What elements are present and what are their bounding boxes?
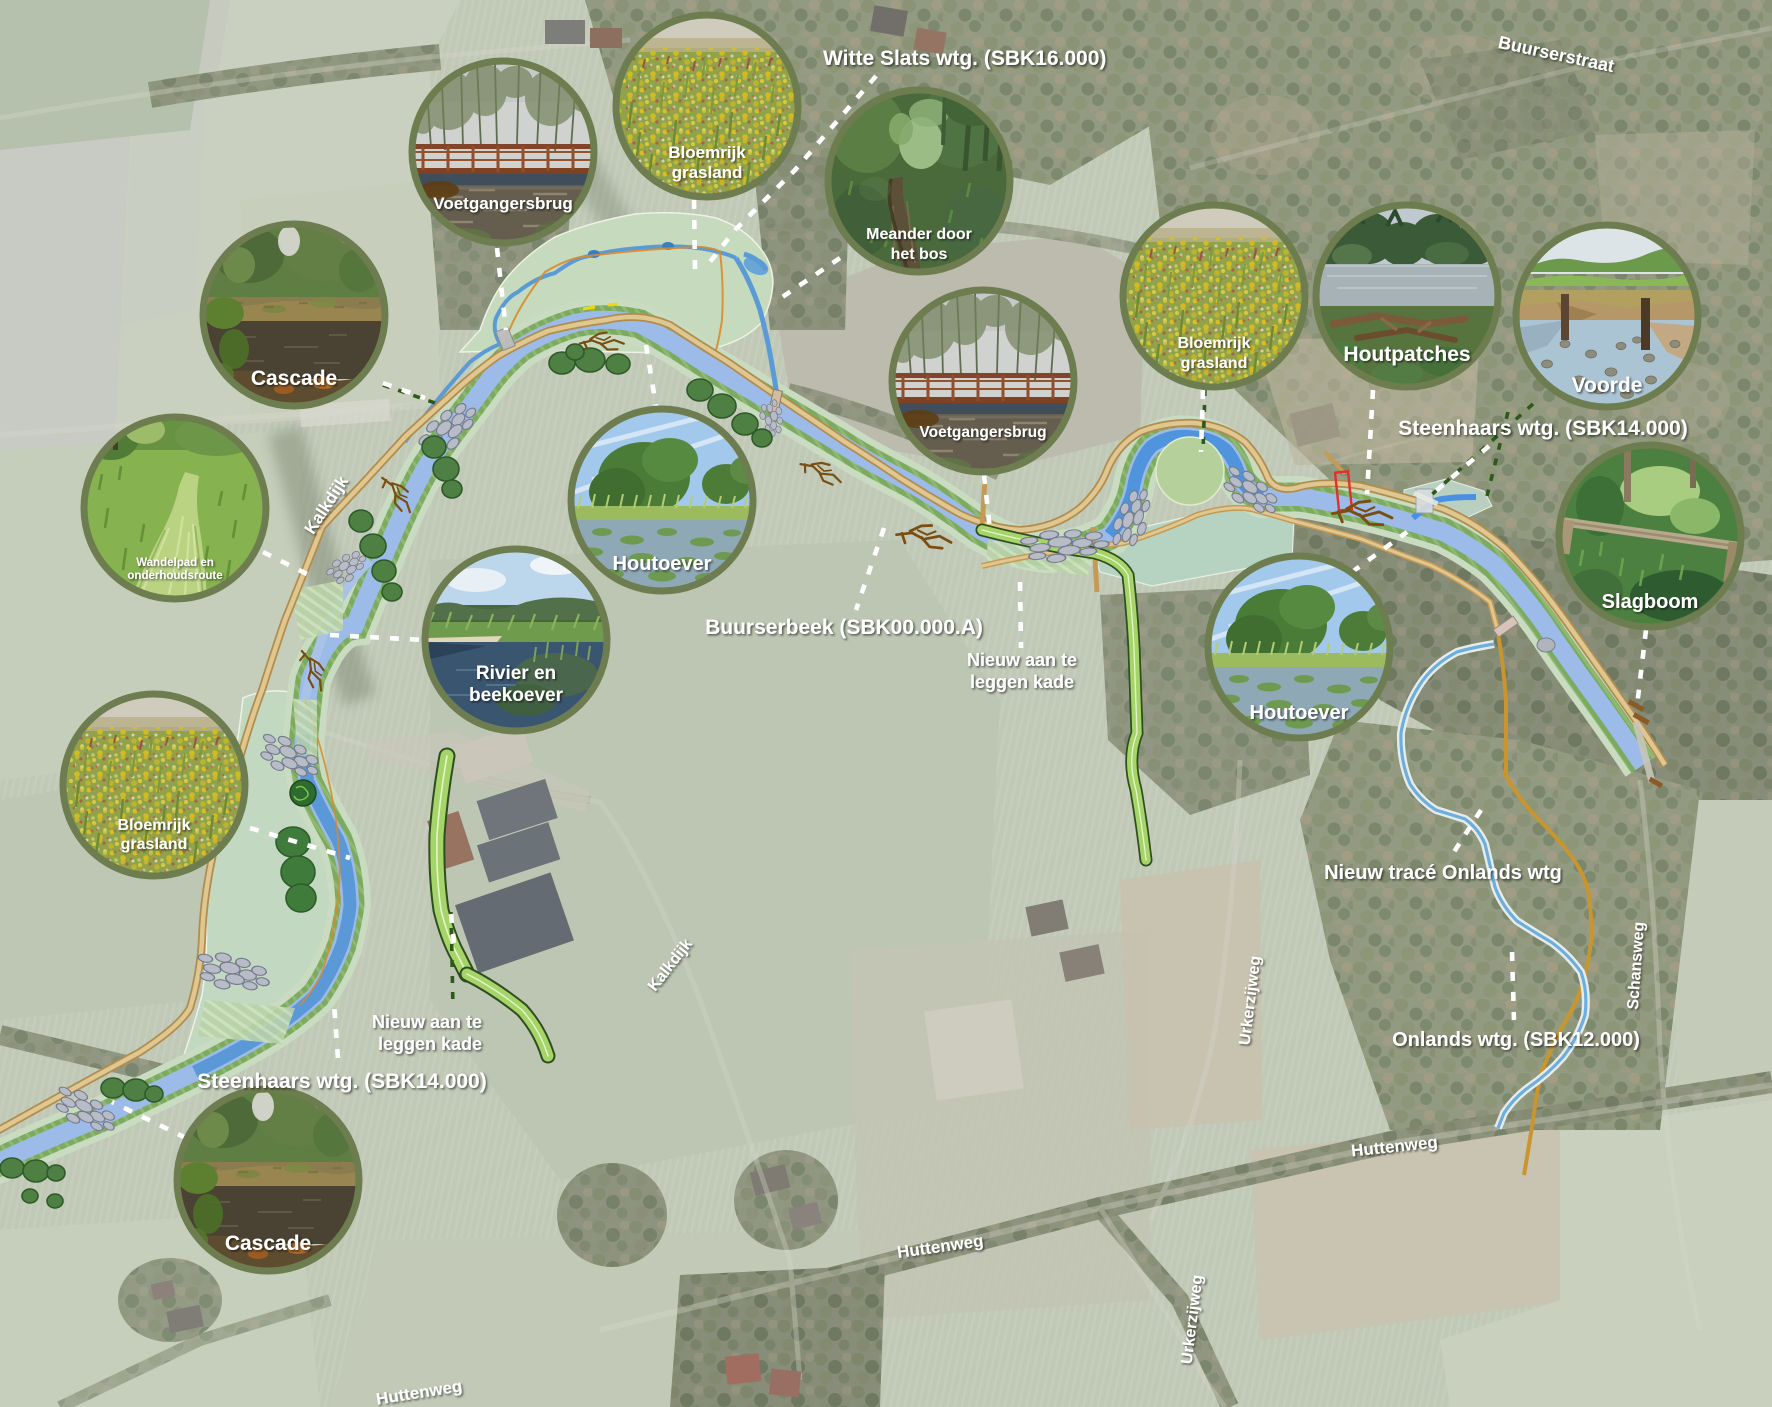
svg-text:Steenhaars wtg. (SBK14.000): Steenhaars wtg. (SBK14.000) bbox=[197, 1070, 486, 1093]
svg-text:Onlands wtg. (SBK12.000): Onlands wtg. (SBK12.000) bbox=[1392, 1029, 1640, 1051]
svg-text:Meander door: Meander door bbox=[866, 226, 972, 243]
svg-text:Witte Slats wtg. (SBK16.000): Witte Slats wtg. (SBK16.000) bbox=[823, 47, 1106, 70]
svg-text:Houtpatches: Houtpatches bbox=[1343, 343, 1470, 366]
svg-text:Cascade: Cascade bbox=[251, 367, 337, 390]
svg-text:Voetgangersbrug: Voetgangersbrug bbox=[433, 194, 572, 213]
svg-text:grasland: grasland bbox=[1181, 355, 1248, 372]
svg-text:Rivier en: Rivier en bbox=[476, 663, 556, 684]
svg-text:Nieuw aan te: Nieuw aan te bbox=[372, 1012, 482, 1032]
svg-text:Buurserbeek (SBK00.000.A): Buurserbeek (SBK00.000.A) bbox=[705, 616, 983, 639]
svg-text:Voorde: Voorde bbox=[1572, 374, 1643, 397]
svg-text:Steenhaars wtg. (SBK14.000): Steenhaars wtg. (SBK14.000) bbox=[1398, 417, 1687, 440]
svg-text:grasland: grasland bbox=[121, 836, 188, 853]
svg-text:Bloemrijk: Bloemrijk bbox=[668, 143, 746, 162]
svg-text:Bloemrijk: Bloemrijk bbox=[118, 817, 191, 834]
svg-text:Wandelpad en: Wandelpad en bbox=[136, 557, 214, 569]
svg-text:leggen kade: leggen kade bbox=[378, 1034, 482, 1054]
svg-text:Houtoever: Houtoever bbox=[1250, 702, 1349, 724]
svg-text:Nieuw aan te: Nieuw aan te bbox=[967, 650, 1077, 670]
svg-text:Voetgangersbrug: Voetgangersbrug bbox=[919, 424, 1046, 441]
svg-text:Nieuw tracé Onlands wtg: Nieuw tracé Onlands wtg bbox=[1324, 862, 1562, 884]
svg-text:het bos: het bos bbox=[891, 246, 948, 263]
svg-text:beekoever: beekoever bbox=[469, 685, 564, 706]
svg-text:Bloemrijk: Bloemrijk bbox=[1178, 335, 1251, 352]
svg-text:onderhoudsroute: onderhoudsroute bbox=[127, 570, 222, 582]
svg-text:Houtoever: Houtoever bbox=[613, 553, 712, 575]
svg-text:Slagboom: Slagboom bbox=[1602, 591, 1699, 613]
svg-text:Cascade: Cascade bbox=[225, 1232, 311, 1255]
svg-text:leggen kade: leggen kade bbox=[970, 672, 1074, 692]
svg-text:grasland: grasland bbox=[672, 163, 743, 182]
